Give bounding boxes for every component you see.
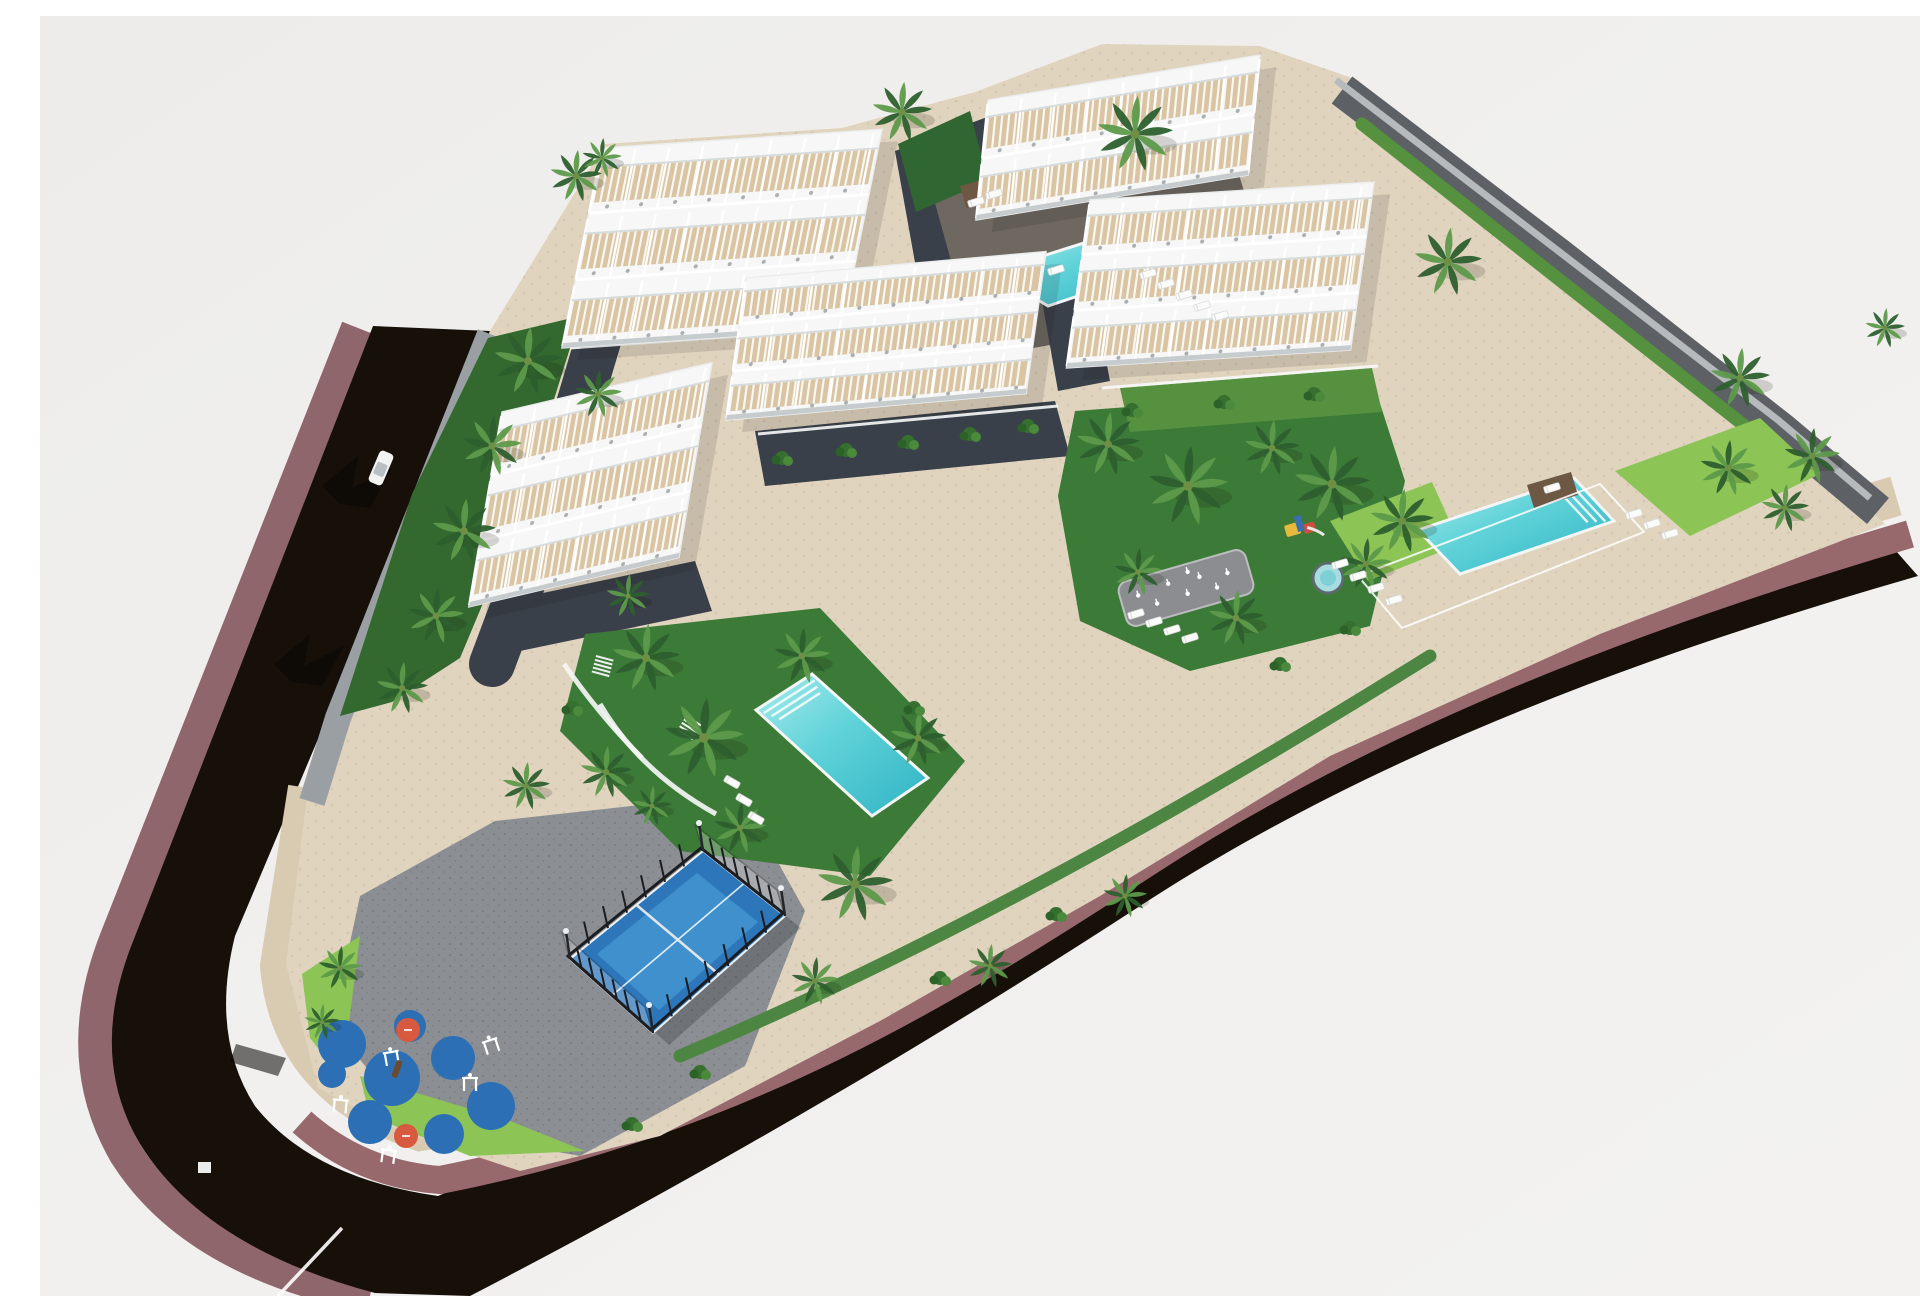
rubber-pad [431, 1036, 475, 1080]
rubber-pad [467, 1082, 515, 1130]
rubber-pad [318, 1060, 346, 1088]
render-canvas [40, 16, 1920, 1296]
building-c [725, 252, 1046, 421]
building-d [1065, 182, 1374, 368]
rubber-pad [364, 1050, 420, 1106]
rubber-pad [348, 1100, 392, 1144]
rubber-pad [424, 1114, 464, 1154]
utility-box [198, 1162, 211, 1173]
aerial-render-figure [40, 16, 1920, 1296]
